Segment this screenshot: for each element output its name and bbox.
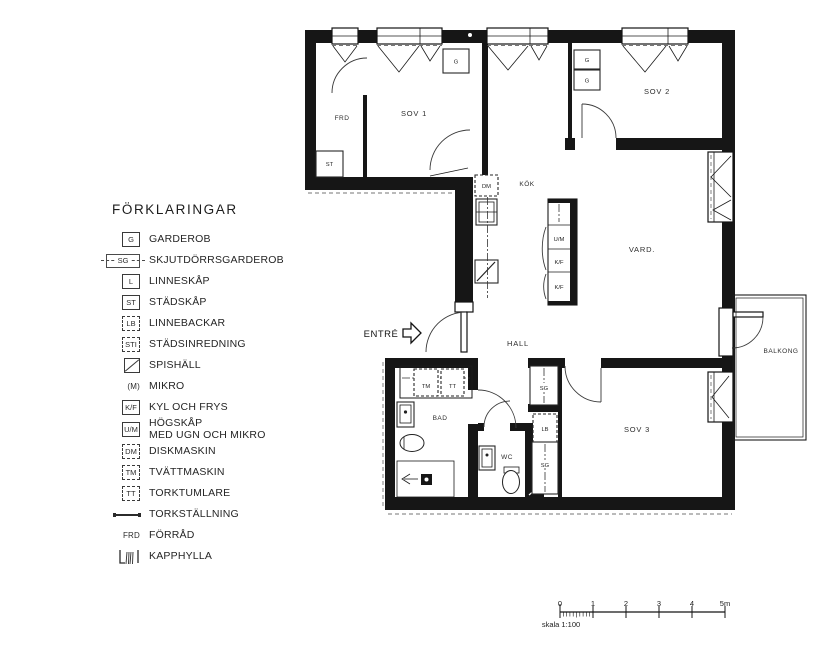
svg-text:G: G [585,58,590,64]
room-label-frd: FRD [335,115,350,122]
wall-west [305,30,316,190]
kylfrys-label: K/F [554,260,563,266]
scale-tick-4: 4 [690,599,694,608]
wall-joint-dot [468,33,472,37]
hall-closets: SG LB SG [530,366,558,494]
wall-wc-north-a [478,423,484,431]
scale-tick-2: 2 [624,599,628,608]
entry-door-leaf [461,312,467,352]
floor-plan-drawing: ST G G G DM [0,0,834,646]
tall-cabinets: U/M K/F K/F [542,199,577,305]
kitchen-fixtures: DM [475,175,498,298]
hogskap-label: U/M [554,237,565,243]
wall-bad-wc-lower [468,424,478,497]
scale-bar: 0 1 2 3 4 5m skala 1:100 [542,599,730,629]
svg-text:G: G [454,60,459,66]
window-frd [332,28,358,62]
entry-label: ENTRÉ [364,329,399,340]
wall-bad-west [385,358,395,510]
sov1-door-arc [430,130,470,170]
torktumlare-box [441,369,464,396]
window-kok [487,28,548,70]
window-sov1 [377,28,442,72]
entry-marker: ENTRÉ [364,323,421,343]
scale-caption: skala 1:100 [542,620,580,629]
room-label-sov2: SOV 2 [644,87,670,96]
svg-text:ST: ST [326,162,334,168]
wall-sov2-south-a [565,138,575,150]
sov2-door-arc [582,104,616,138]
balcony-door [719,308,763,356]
window-sov2 [622,28,688,72]
partition-sov3-west [558,366,562,497]
wall-sov3-north-b [601,358,722,368]
sov3-door-arc [565,366,601,402]
scale-tick-1: 1 [591,599,595,608]
svg-text:DM: DM [482,184,491,190]
room-label-sov3: SOV 3 [624,425,650,434]
room-label-balkong: BALKONG [764,348,799,355]
partition-sov2-west [568,43,572,138]
svg-text:SG: SG [541,463,550,469]
room-label-kok: KÖK [519,180,534,188]
wall-south [385,497,735,510]
window-vard [708,152,733,222]
svg-text:G: G [585,79,590,85]
wc-door-arc [484,401,510,427]
kylfrys-label: K/F [554,285,563,291]
partition-sov1-east [482,43,488,177]
wc-toilet [503,471,520,494]
svg-text:LB: LB [541,427,548,433]
scale-tick-3: 3 [657,599,661,608]
tvattmaskin-box [414,369,438,396]
reference-dashed-lines [308,193,732,514]
sov1-door-leaf [430,168,468,176]
room-label-vard: VARD. [629,245,655,254]
partition-frd-sov1 [363,95,367,177]
wall-wc-north-b [510,423,535,431]
room-label-sov1: SOV 1 [401,109,427,118]
room-label-wc: WC [501,454,513,461]
floor-plan-page: FÖRKLARINGAR G GARDEROB SG SKJUTDÖRRSGAR… [0,0,834,646]
svg-text:TT: TT [449,384,457,390]
wall-bad-wc-upper [468,358,478,390]
wc-fixtures [479,446,520,494]
room-label-bad: BAD [433,415,448,422]
svg-text:SG: SG [540,386,549,392]
bathroom-fixtures: TM TT [397,366,472,497]
entry-jamb [455,302,473,312]
wall-kitchen-west [455,177,473,303]
closets: ST G G G [316,49,600,177]
svg-text:TM: TM [422,384,431,390]
room-label-hall: HALL [507,339,529,348]
wall-sov2-south-b [616,138,722,150]
entry-door-arc [426,312,466,352]
wc-sink [479,446,495,470]
frd-door-arc [332,58,367,93]
wall-frd-south [305,177,473,190]
window-sov3 [708,372,733,422]
bad-door-arc [478,390,516,428]
scale-tick-0: 0 [558,599,562,608]
entry-arrow-icon [403,323,421,343]
scale-tick-5: 5m [720,599,730,608]
walls [305,30,735,510]
